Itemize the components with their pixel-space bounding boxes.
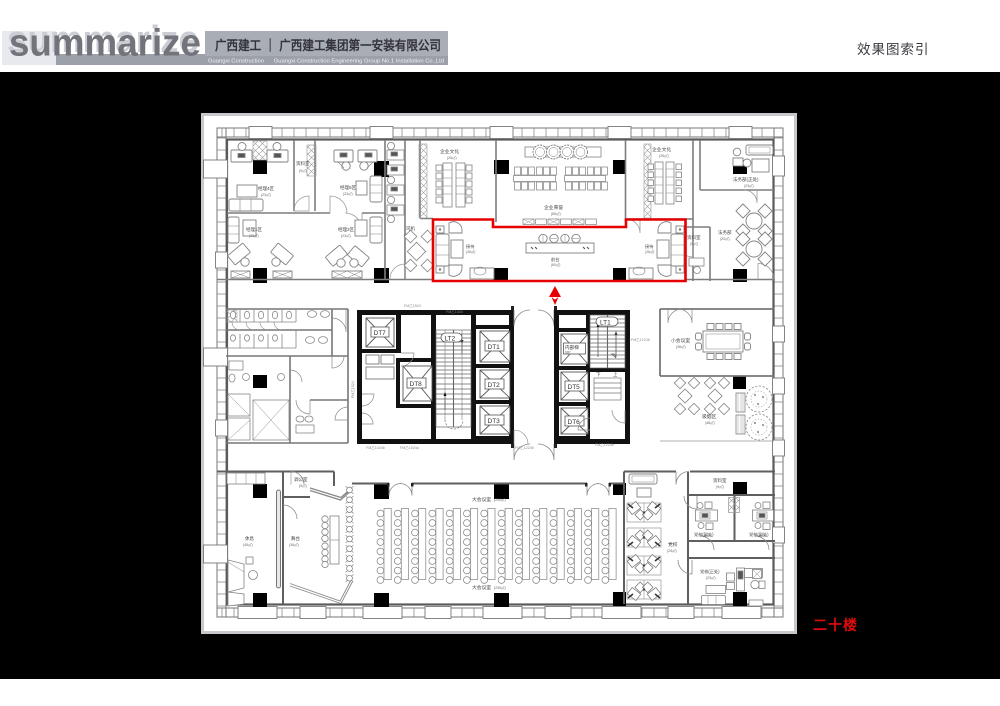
svg-text:小会议室: 小会议室 [671, 337, 690, 344]
svg-text:(25㎡): (25㎡) [667, 548, 677, 553]
svg-text:(9㎡): (9㎡) [690, 241, 698, 246]
svg-text:接待: 接待 [645, 243, 654, 250]
svg-text:FM乙1024b: FM乙1024b [366, 445, 385, 450]
svg-text:资料室: 资料室 [713, 477, 727, 484]
svg-text:FM乙1024a: FM乙1024a [400, 445, 419, 450]
svg-text:FM乙1224b: FM乙1224b [515, 445, 534, 450]
svg-text:资料室: 资料室 [687, 234, 701, 241]
svg-text:经理4区: 经理4区 [258, 185, 275, 191]
svg-text:DT2: DT2 [488, 382, 501, 389]
svg-text:(60㎡): (60㎡) [551, 262, 560, 267]
svg-text:党校: 党校 [668, 541, 678, 548]
svg-text:Guangxi Construction Guan: Guangxi Construction Guangxi Constructio… [208, 59, 444, 65]
svg-text:吸烟区: 吸烟区 [702, 413, 717, 420]
svg-text:前台: 前台 [551, 256, 559, 263]
svg-text:(23㎡): (23㎡) [706, 575, 716, 580]
svg-text:(230㎡): (230㎡) [494, 585, 506, 590]
svg-text:大会议室: 大会议室 [472, 496, 491, 503]
svg-text:(36㎡): (36㎡) [289, 542, 299, 547]
svg-text:FM乙1224b: FM乙1224b [631, 337, 650, 342]
svg-text:DT3: DT3 [488, 418, 501, 425]
svg-text:企业荣誉: 企业荣誉 [544, 204, 563, 211]
svg-text:DT8: DT8 [410, 381, 423, 388]
svg-text:党校(副处): 党校(副处) [749, 531, 769, 538]
svg-text:(23㎡): (23㎡) [261, 192, 271, 197]
svg-text:(23㎡): (23㎡) [249, 233, 259, 238]
svg-text:经理5区: 经理5区 [340, 184, 357, 190]
svg-text:(20㎡): (20㎡) [720, 236, 730, 241]
svg-text:(9㎡): (9㎡) [299, 168, 307, 173]
svg-text:(26㎡): (26㎡) [659, 153, 669, 158]
svg-text:法务部: 法务部 [718, 229, 732, 236]
svg-text:(9㎡): (9㎡) [716, 484, 724, 489]
svg-text:二十楼: 二十楼 [813, 617, 858, 633]
svg-text:(26㎡): (26㎡) [447, 155, 457, 160]
svg-text:DT6: DT6 [568, 419, 581, 426]
svg-text:(36㎡): (36㎡) [676, 344, 686, 349]
svg-text:FM乙1224b: FM乙1224b [595, 442, 614, 447]
svg-text:上: 上 [613, 371, 618, 377]
svg-text:DT7: DT7 [374, 330, 387, 337]
svg-text:资料室: 资料室 [296, 160, 310, 167]
svg-text:休息: 休息 [245, 535, 254, 542]
svg-text:大会议室: 大会议室 [472, 584, 491, 591]
svg-text:接待: 接待 [466, 243, 475, 250]
svg-text:(85㎡): (85㎡) [551, 211, 561, 216]
svg-text:党校(正处): 党校(正处) [700, 568, 720, 575]
svg-text:(9㎡): (9㎡) [299, 483, 307, 488]
svg-text:(23㎡): (23㎡) [744, 183, 754, 188]
svg-text:LT1: LT1 [600, 320, 611, 327]
svg-text:LT2: LT2 [445, 336, 456, 343]
svg-text:经理1区: 经理1区 [246, 226, 263, 232]
svg-text:(23㎡): (23㎡) [341, 233, 351, 238]
svg-text:(26㎡): (26㎡) [466, 249, 475, 254]
svg-text:党校(副处): 党校(副处) [694, 531, 714, 538]
svg-text:DT5: DT5 [568, 384, 581, 391]
svg-text:舞台: 舞台 [291, 535, 300, 542]
svg-text:效果图索引: 效果图索引 [857, 42, 930, 57]
svg-text:FM乙1524: FM乙1524 [404, 303, 421, 308]
svg-text:调公室: 调公室 [294, 476, 308, 483]
svg-text:企业文化: 企业文化 [440, 148, 459, 155]
svg-text:法务部(正处): 法务部(正处) [733, 176, 759, 183]
svg-text:summarize: summarize [9, 23, 201, 65]
svg-text:企业文化: 企业文化 [652, 146, 671, 153]
svg-text:(48㎡): (48㎡) [705, 420, 715, 425]
svg-text:经理2区: 经理2区 [338, 226, 355, 232]
svg-text:DT1: DT1 [488, 344, 501, 351]
svg-text:(26㎡): (26㎡) [645, 249, 654, 254]
svg-text:FM乙1524: FM乙1524 [350, 381, 355, 398]
svg-text:(230㎡): (230㎡) [494, 497, 506, 502]
svg-text:(23㎡): (23㎡) [343, 191, 353, 196]
svg-text:FM乙1024: FM乙1024 [446, 309, 463, 314]
svg-text:广西建工 ｜ 广西建工集团第一安装有限公司: 广西建工 ｜ 广西建工集团第一安装有限公司 [215, 38, 441, 53]
svg-text:VIP: VIP [565, 351, 571, 355]
svg-text:(45㎡): (45㎡) [243, 542, 253, 547]
